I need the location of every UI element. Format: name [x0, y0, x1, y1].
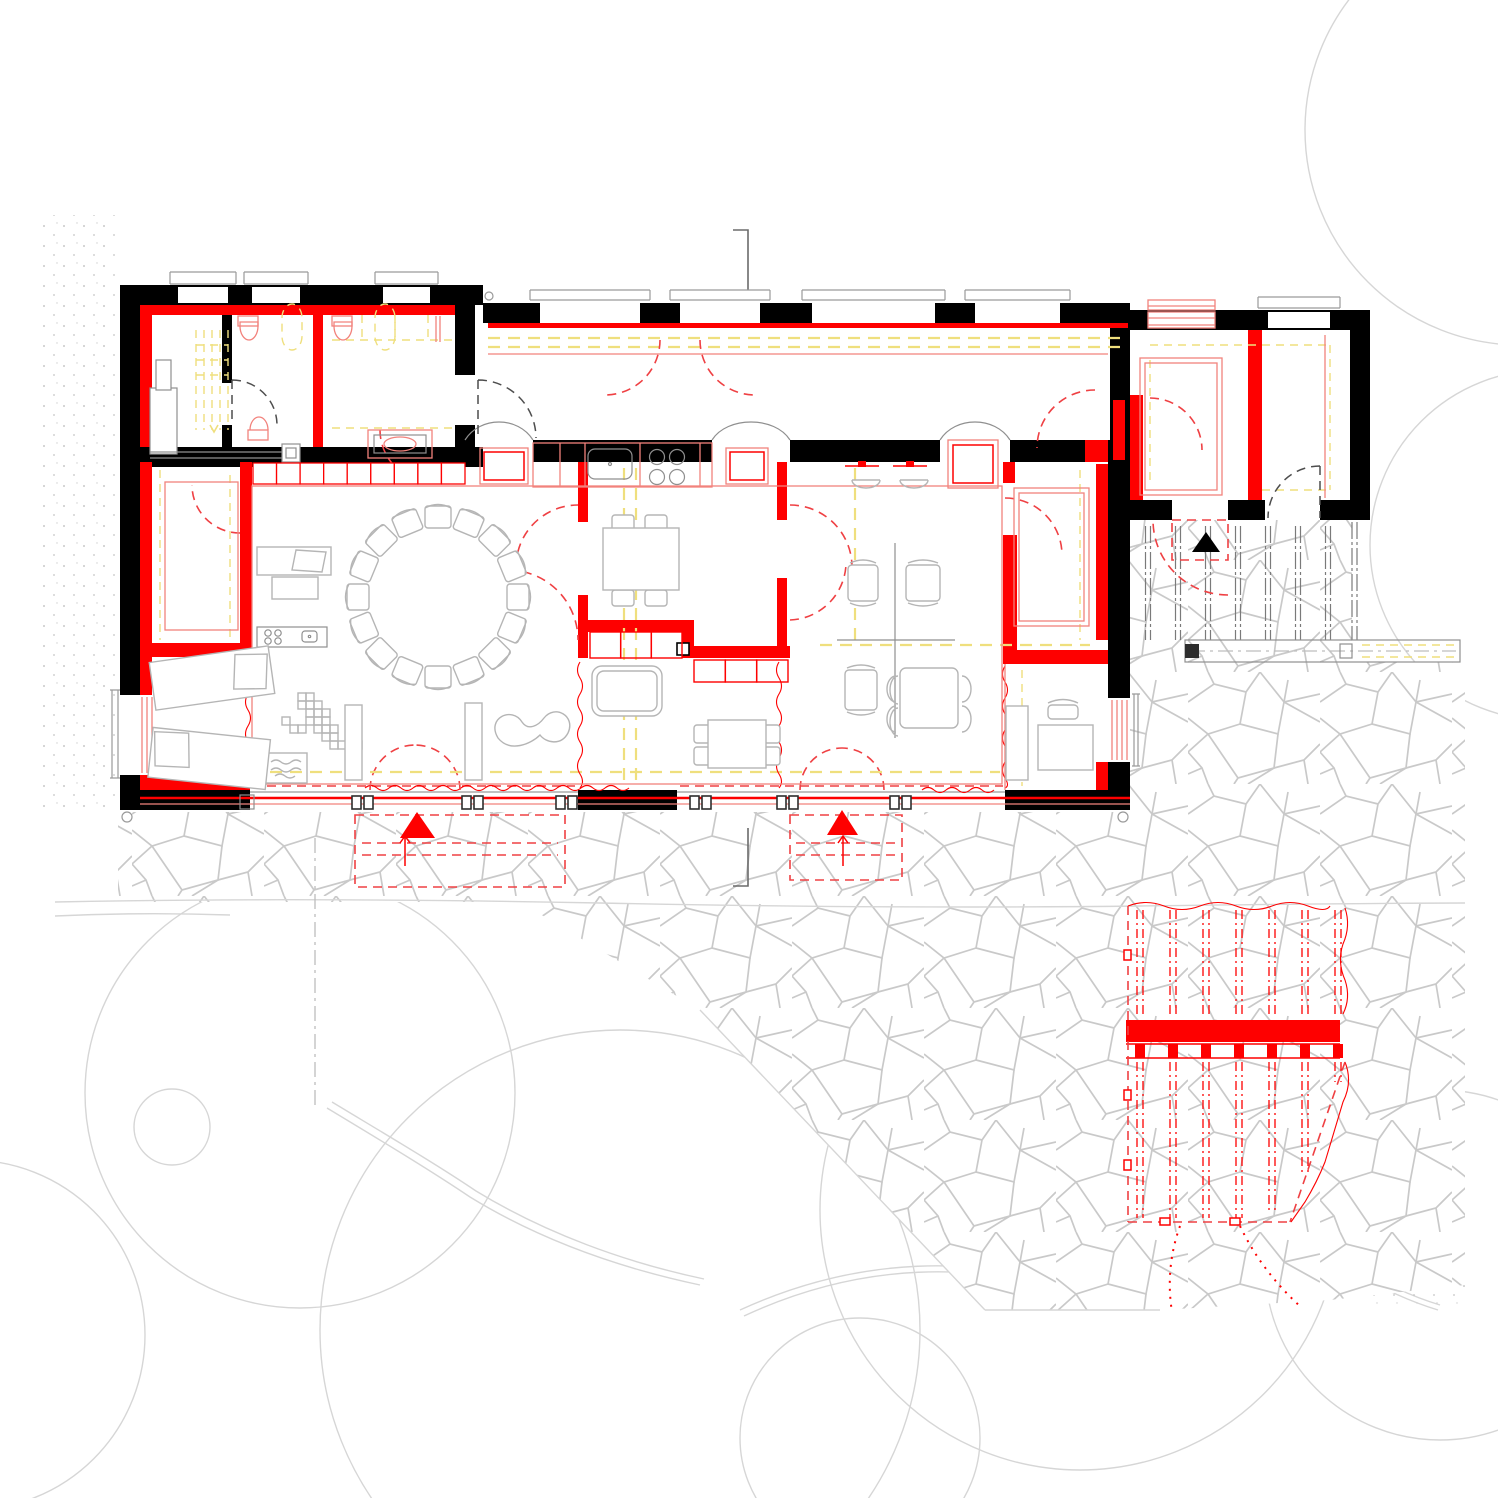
mattress	[148, 646, 275, 790]
low-cabinet-2	[694, 660, 788, 682]
square-table	[592, 666, 662, 716]
rug	[265, 753, 307, 783]
dining-table-1	[603, 515, 679, 606]
meeting-table	[887, 668, 971, 736]
play-kitchen	[257, 627, 327, 647]
bathroom-fixtures	[150, 304, 440, 462]
floor-plan-canvas	[0, 0, 1498, 1498]
daybed	[257, 547, 331, 599]
window-new-red	[1148, 300, 1215, 328]
deck-red-bar	[1126, 1020, 1340, 1042]
window-west	[110, 690, 152, 778]
wall-desk	[845, 461, 928, 488]
office-furniture	[837, 461, 1093, 770]
section-mark-top	[733, 230, 748, 290]
bench	[345, 705, 362, 780]
entry-hall	[1145, 335, 1325, 498]
stipple-strip-west	[42, 215, 115, 808]
office-desk	[1038, 700, 1093, 771]
dining-table-2	[694, 720, 780, 768]
toilet	[238, 316, 352, 440]
corridor-lines	[488, 338, 1122, 354]
bench	[1006, 706, 1028, 780]
chair-circle	[346, 505, 531, 690]
section-markers	[733, 230, 748, 886]
locker-row	[253, 463, 465, 484]
bench	[465, 703, 482, 780]
play-loop	[495, 712, 570, 746]
